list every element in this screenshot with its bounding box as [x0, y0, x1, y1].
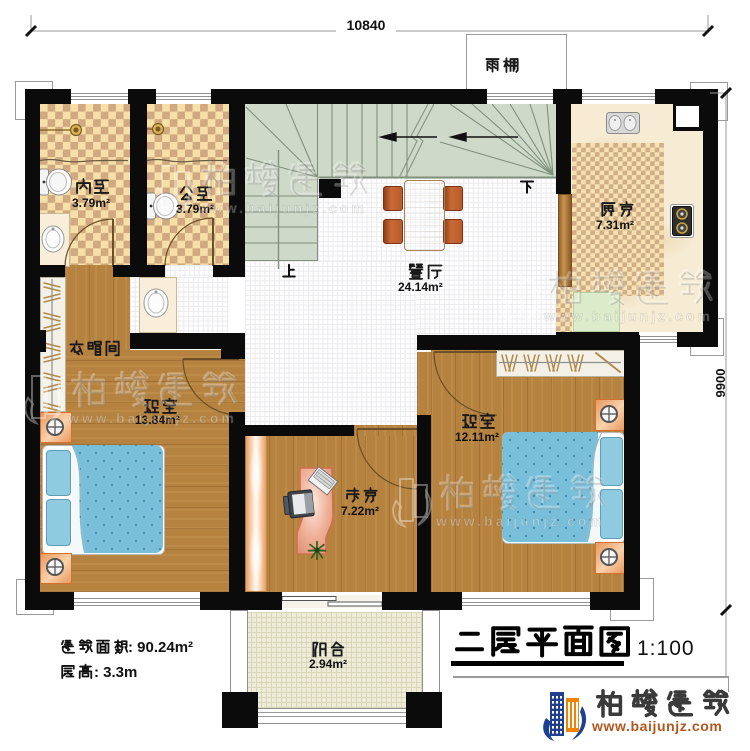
- svg-text:www.baijunjz.com: www.baijunjz.com: [67, 410, 237, 426]
- svg-text:www.baijunjz.com: www.baijunjz.com: [197, 200, 367, 216]
- svg-text:www.baijunjz.com: www.baijunjz.com: [435, 513, 605, 529]
- svg-text:www.baijunjz.com: www.baijunjz.com: [543, 308, 713, 324]
